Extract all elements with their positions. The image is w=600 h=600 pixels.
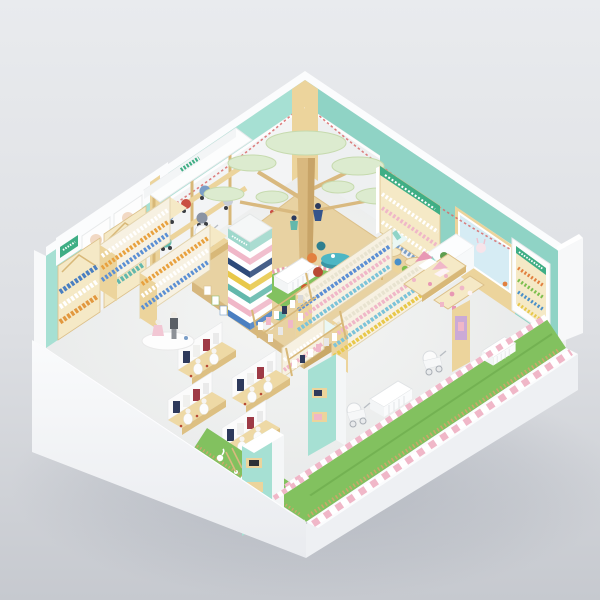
- store-render: [0, 0, 600, 600]
- pouf: [313, 267, 323, 277]
- mint-partition: [308, 354, 346, 456]
- pouf: [307, 253, 317, 263]
- left-end-cap: [34, 250, 46, 348]
- shopping-bag: [184, 336, 188, 340]
- brand-tower: [228, 214, 272, 330]
- swan-toy: [217, 455, 223, 461]
- isometric-scene: [0, 0, 600, 600]
- mannequin-podium: [142, 332, 194, 350]
- canopy-disc: [266, 131, 346, 155]
- right-return-wall: [558, 238, 583, 343]
- poster-kiosk: [452, 300, 470, 372]
- pouf: [317, 242, 326, 251]
